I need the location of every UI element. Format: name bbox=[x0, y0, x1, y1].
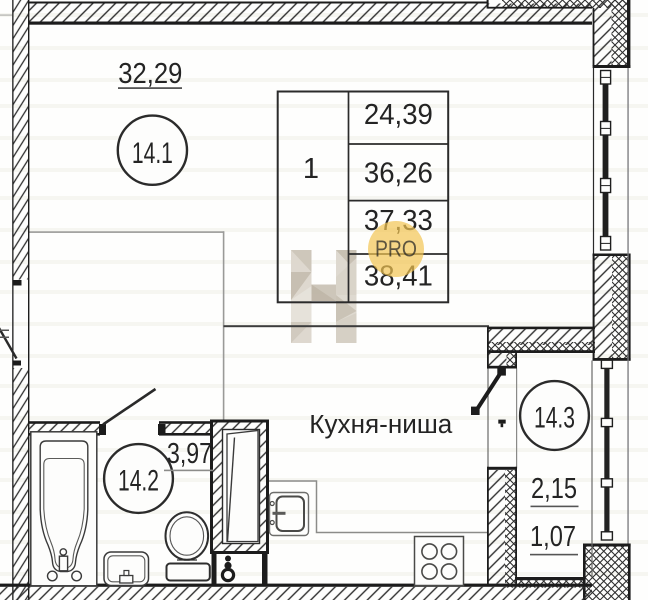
svg-text:14.2: 14.2 bbox=[118, 465, 159, 498]
svg-text:2,15: 2,15 bbox=[531, 473, 577, 505]
svg-text:32,29: 32,29 bbox=[118, 58, 182, 90]
svg-text:1,07: 1,07 bbox=[530, 521, 576, 553]
svg-text:14.1: 14.1 bbox=[132, 137, 173, 170]
svg-text:1: 1 bbox=[303, 153, 319, 185]
svg-text:Кухня-ниша: Кухня-ниша bbox=[309, 411, 453, 439]
svg-text:14.3: 14.3 bbox=[534, 402, 575, 435]
svg-text:36,26: 36,26 bbox=[364, 158, 433, 190]
svg-text:24,39: 24,39 bbox=[364, 99, 433, 131]
svg-text:3,97: 3,97 bbox=[167, 438, 212, 470]
svg-text:PRO: PRO bbox=[375, 236, 417, 262]
